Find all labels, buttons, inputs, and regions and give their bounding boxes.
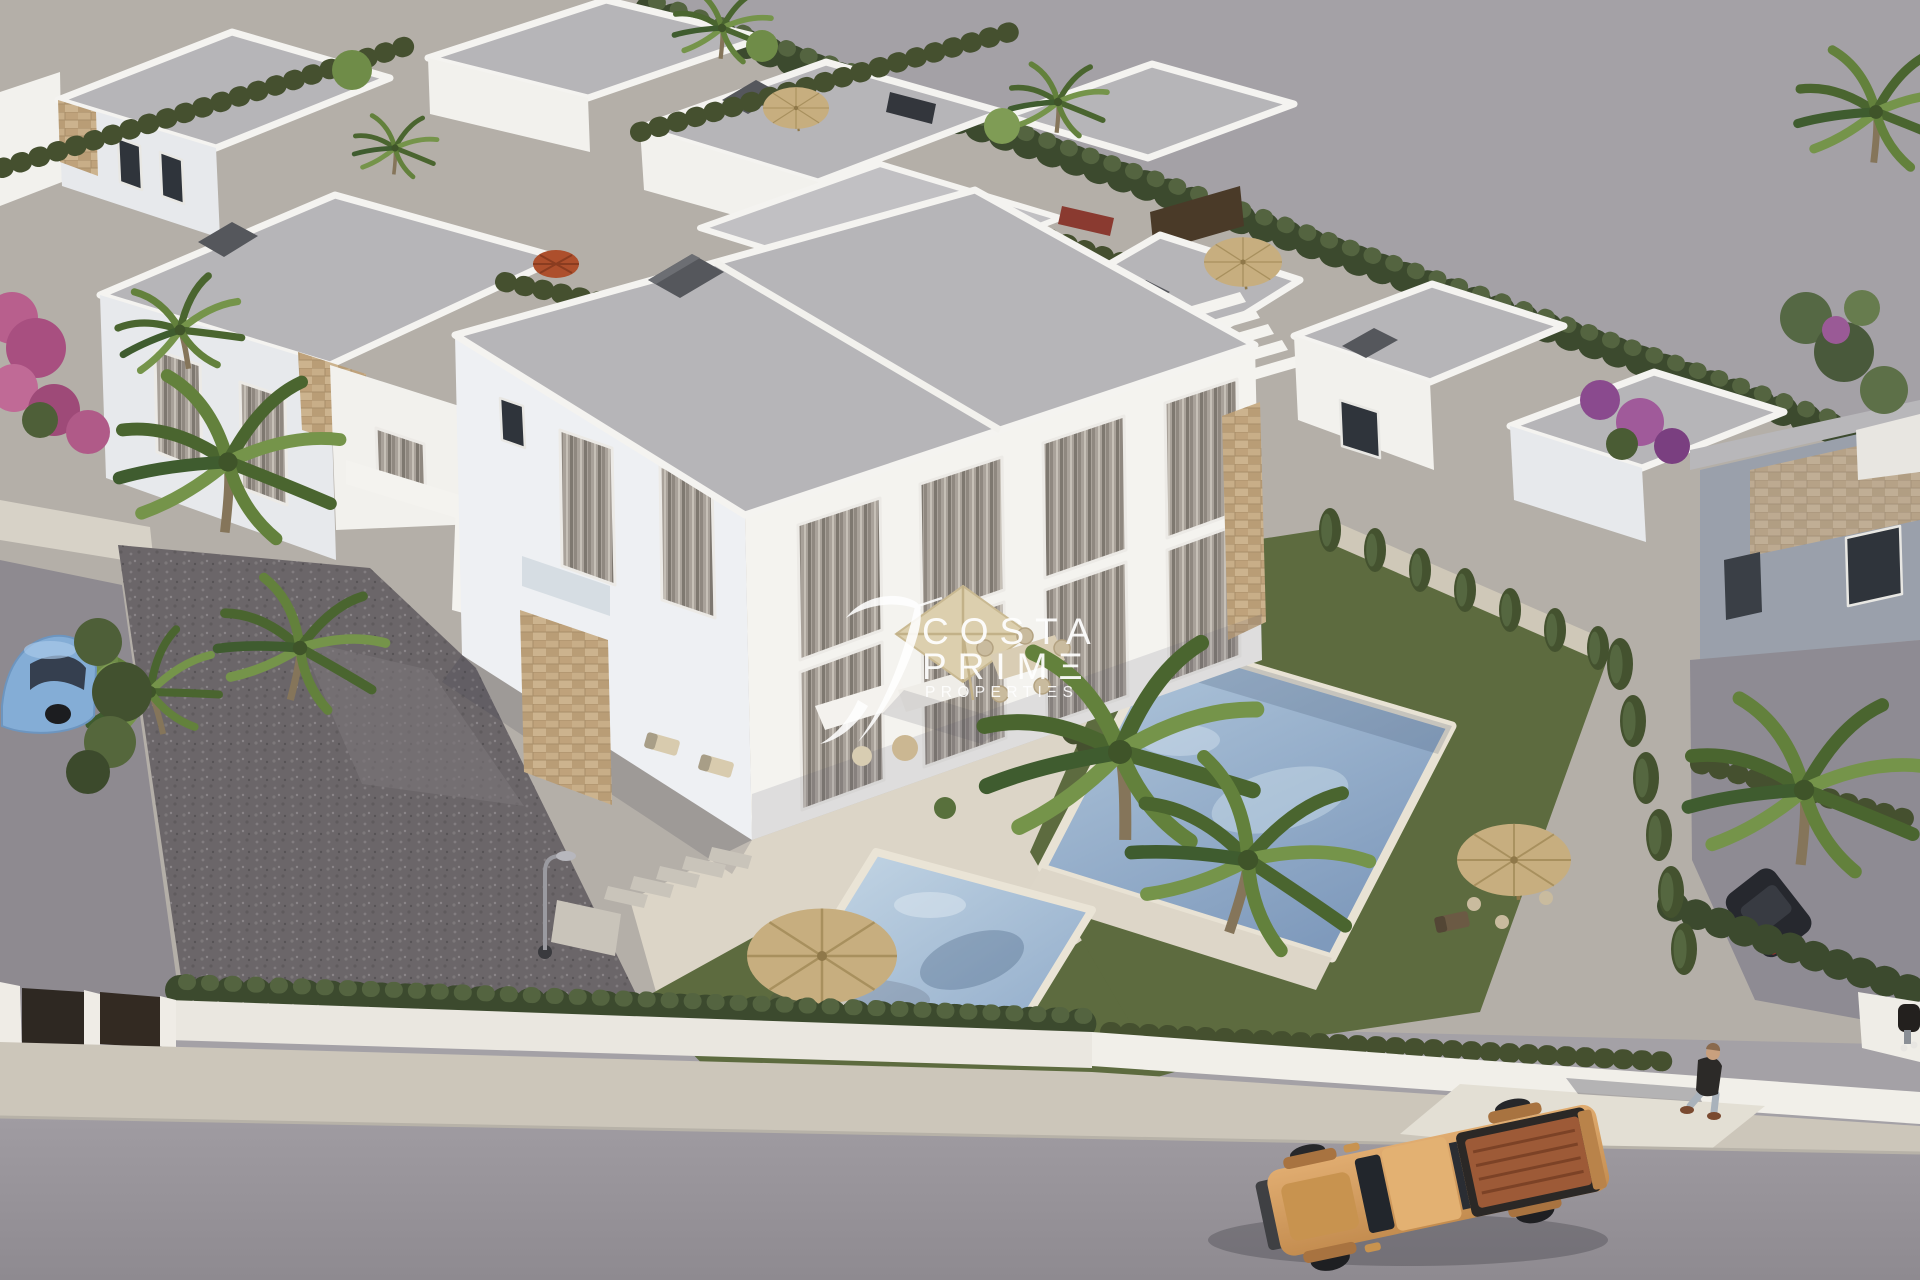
louvered-window [1846, 526, 1902, 606]
curtained-window [155, 350, 202, 470]
wheel [45, 704, 71, 724]
coffee-table [892, 735, 918, 761]
pedestrian-torso [1696, 1057, 1722, 1096]
window [160, 152, 184, 204]
pouf [852, 746, 872, 766]
curtained-window [560, 430, 615, 585]
watermark-line3: PROPERTIΞS [925, 684, 1078, 701]
watermark-line2: PRIMΞ [922, 646, 1094, 687]
window [500, 398, 525, 448]
potted-plant [934, 797, 956, 819]
villa-development-render: COSTA PRIMΞ PROPERTIΞS [0, 0, 1920, 1280]
window [118, 138, 142, 190]
render-canvas: COSTA PRIMΞ PROPERTIΞS [0, 0, 1920, 1280]
stone-cladding [1222, 402, 1266, 640]
window [1724, 552, 1762, 620]
